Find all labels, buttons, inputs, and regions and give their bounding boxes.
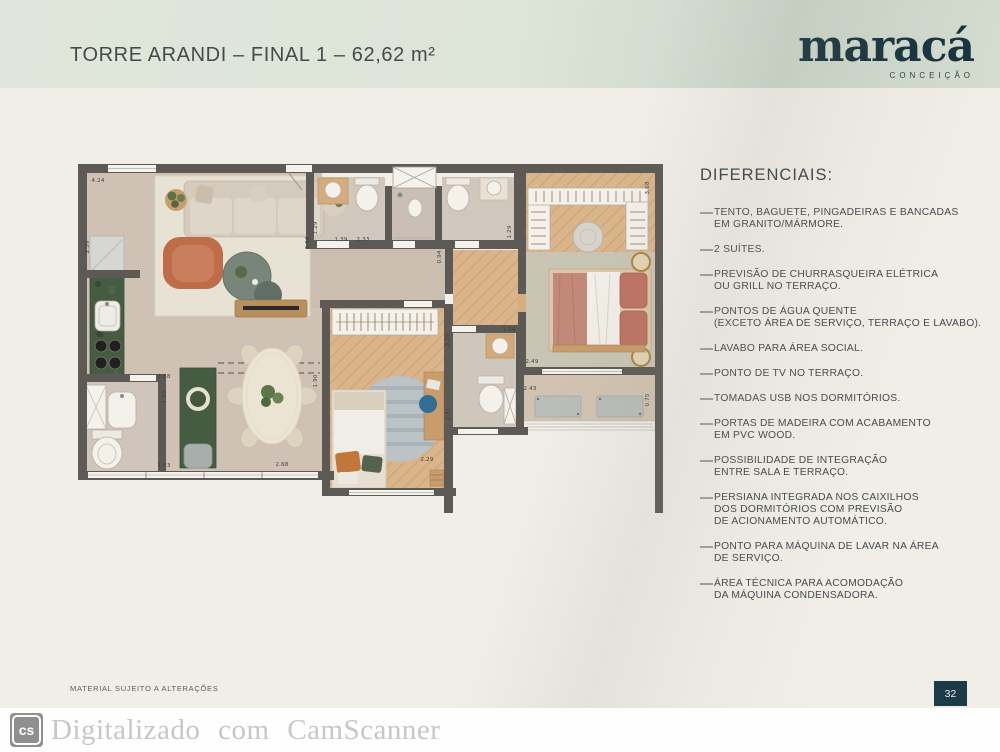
sofa — [184, 181, 324, 237]
floor-plan: 4.242.593.641.291.392.331.293.680.941.24… — [78, 158, 670, 518]
watermark-text: Digitalizado com CamScanner — [51, 714, 440, 747]
feature-item-text: TOMADAS USB NOS DORMITÓRIOS. — [714, 393, 900, 405]
feature-item: PREVISÃO DE CHURRASQUEIRA ELÉTRICAOU GRI… — [700, 269, 985, 293]
page-number-badge: 32 — [934, 681, 967, 706]
lavabo-toilet — [92, 430, 122, 469]
kitchen — [90, 236, 124, 376]
dimension-label: 0.75 — [645, 393, 651, 406]
terrace-bench — [535, 396, 581, 417]
refrigerator — [90, 236, 124, 272]
dimension-label: 2.49 — [525, 359, 538, 365]
features-heading: DIFERENCIAIS: — [700, 166, 985, 185]
kitchen-sink — [95, 301, 120, 331]
footer-disclaimer: MATERIAL SUJEITO A ALTERAÇÕES — [70, 684, 218, 693]
terrace-rail — [524, 421, 655, 430]
bullet-dash-icon — [700, 348, 713, 350]
camscanner-icon: cs — [10, 713, 43, 747]
feature-item-text: PORTAS DE MADEIRA COM ACABAMENTOEM PVC W… — [714, 418, 931, 442]
bullet-dash-icon — [700, 212, 713, 214]
feature-item: PONTO DE TV NO TERRAÇO. — [700, 368, 985, 380]
feature-item: 2 SUÍTES. — [700, 244, 985, 256]
feature-item-text: PONTO PARA MÁQUINA DE LAVAR NA ÁREADE SE… — [714, 541, 939, 565]
features-panel: DIFERENCIAIS: TENTO, BAGUETE, PINGADEIRA… — [700, 166, 985, 615]
feature-item: LAVABO PARA ÁREA SOCIAL. — [700, 343, 985, 355]
brand-logo-name: maracá — [798, 24, 974, 70]
feature-item: ÁREA TÉCNICA PARA ACOMODAÇÃODA MÁQUINA C… — [700, 578, 985, 602]
bullet-dash-icon — [700, 460, 713, 462]
bullet-dash-icon — [700, 583, 713, 585]
side-plant-table-left — [165, 189, 187, 211]
feature-item: PONTOS DE ÁGUA QUENTE(EXCETO ÁREA DE SER… — [700, 306, 985, 330]
closet-pouf — [573, 222, 603, 252]
dimension-label: 2.31 — [446, 407, 452, 420]
bullet-dash-icon — [700, 373, 713, 375]
scanned-brochure-page: TORRE ARANDI – FINAL 1 – 62,62 m² maracá… — [0, 0, 1000, 752]
armchair — [163, 237, 223, 289]
dimension-label: 2.33 — [356, 237, 369, 243]
master-bedroom — [523, 253, 653, 367]
bullet-dash-icon — [700, 274, 713, 276]
bullet-dash-icon — [700, 423, 713, 425]
feature-item: POSSIBILIDADE DE INTEGRAÇÃOENTRE SALA E … — [700, 455, 985, 479]
feature-item-text: POSSIBILIDADE DE INTEGRAÇÃOENTRE SALA E … — [714, 455, 887, 479]
feature-item: PERSIANA INTEGRADA NOS CAIXILHOSDOS DORM… — [700, 492, 985, 528]
dimension-label: 4.24 — [91, 178, 104, 184]
features-list: TENTO, BAGUETE, PINGADEIRAS E BANCADASEM… — [700, 207, 985, 602]
brand-logo-subtitle: CONCEIÇÃO — [798, 71, 974, 80]
feature-item-text: PONTOS DE ÁGUA QUENTE(EXCETO ÁREA DE SER… — [714, 306, 981, 330]
feature-item: PORTAS DE MADEIRA COM ACABAMENTOEM PVC W… — [700, 418, 985, 442]
feature-item-text: TENTO, BAGUETE, PINGADEIRAS E BANCADASEM… — [714, 207, 958, 231]
feature-item: TENTO, BAGUETE, PINGADEIRAS E BANCADASEM… — [700, 207, 985, 231]
feature-item-text: PREVISÃO DE CHURRASQUEIRA ELÉTRICAOU GRI… — [714, 269, 938, 293]
bullet-dash-icon — [700, 311, 713, 313]
dimension-label: 0.94 — [437, 250, 443, 263]
dimension-label: 3.29 — [445, 333, 451, 346]
feature-item-text: PERSIANA INTEGRADA NOS CAIXILHOSDOS DORM… — [714, 492, 919, 528]
feature-item-text: LAVABO PARA ÁREA SOCIAL. — [714, 343, 863, 355]
service-shaft — [504, 388, 516, 424]
dimension-label: 1.90 — [313, 374, 319, 387]
dimension-label: 1.29 — [507, 225, 513, 238]
page-title: TORRE ARANDI – FINAL 1 – 62,62 m² — [70, 44, 435, 67]
feature-item-text: 2 SUÍTES. — [714, 244, 765, 256]
camscanner-icon-label: cs — [12, 715, 41, 745]
top-shaft — [393, 167, 436, 188]
feature-item: PONTO PARA MÁQUINA DE LAVAR NA ÁREADE SE… — [700, 541, 985, 565]
island-stool — [184, 444, 212, 468]
suite2-bed — [332, 390, 386, 488]
bullet-dash-icon — [700, 398, 713, 400]
dining-table — [242, 348, 302, 444]
tv-console — [235, 300, 307, 317]
bullet-dash-icon — [700, 249, 713, 251]
dimension-label: 3.68 — [645, 181, 651, 194]
bullet-dash-icon — [700, 546, 713, 548]
dimension-label: 1.39 — [334, 237, 347, 243]
dimension-label: 2.43 — [523, 386, 536, 392]
dimension-label: 1.52 — [162, 390, 168, 403]
feature-item-text: ÁREA TÉCNICA PARA ACOMODAÇÃODA MÁQUINA C… — [714, 578, 903, 602]
kitchen-island — [180, 368, 216, 468]
feature-item-text: PONTO DE TV NO TERRAÇO. — [714, 368, 863, 380]
dimension-label: 1.58 — [157, 374, 170, 380]
master-bed — [549, 269, 651, 351]
brand-logo: maracá CONCEIÇÃO — [798, 24, 974, 80]
floor-plan-drawing: 4.242.593.641.291.392.331.293.680.941.24… — [78, 158, 670, 518]
dimension-label: 2.59 — [85, 240, 91, 253]
dimension-label: 2.68 — [275, 462, 288, 468]
side-table-ring — [632, 253, 650, 271]
terrace-bench — [597, 396, 643, 417]
dimension-label: 1.24 — [502, 327, 515, 333]
dimension-label: 3.64 — [305, 236, 311, 249]
feature-item: TOMADAS USB NOS DORMITÓRIOS. — [700, 393, 985, 405]
bullet-dash-icon — [700, 497, 713, 499]
bed-foot-bench — [553, 345, 645, 352]
suite2-wardrobe — [332, 309, 438, 335]
dimension-label: 1.29 — [313, 221, 319, 234]
dimension-label: 2.29 — [420, 457, 433, 463]
watermark-strip: cs Digitalizado com CamScanner — [0, 708, 1000, 752]
dimension-label: 1.53 — [157, 463, 170, 469]
lavabo-sink — [108, 392, 136, 428]
